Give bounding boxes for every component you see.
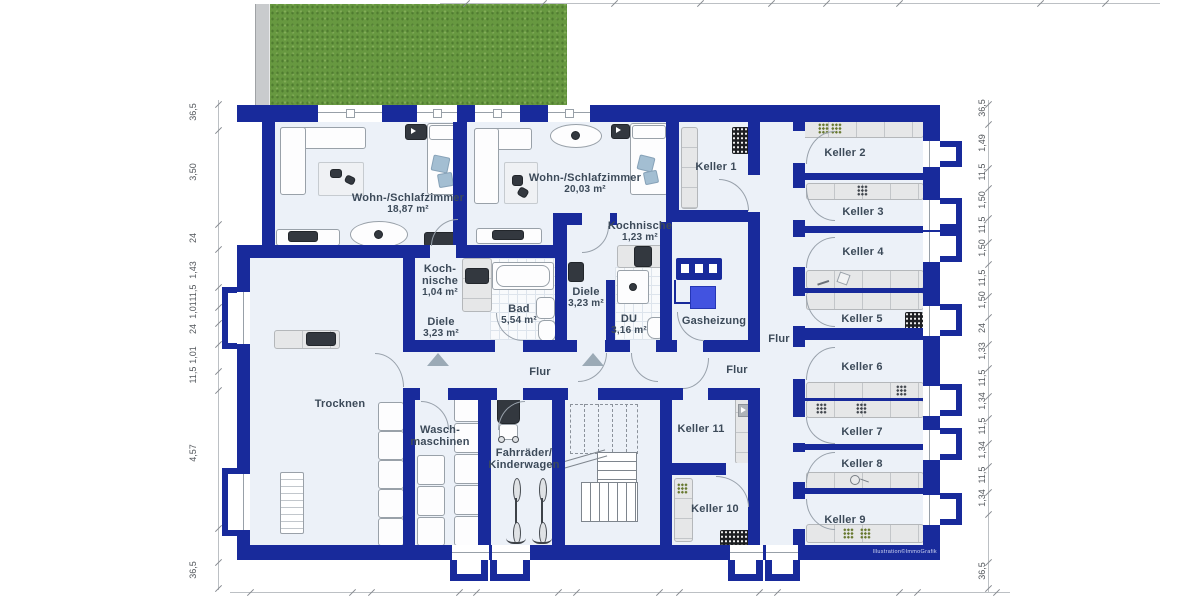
bed-pillow (632, 125, 666, 139)
sideboard-tv (288, 231, 318, 242)
sideboard-tv (492, 230, 524, 240)
door-gap (677, 340, 703, 352)
shower-drain (629, 283, 637, 291)
door-gap (726, 463, 748, 475)
window-vent (493, 109, 502, 118)
room-label-wohn1: Wohn-/Schlafzimmer 18,87 m² (352, 192, 464, 216)
dimension-line-right (988, 100, 989, 592)
wall-keller1-south (666, 210, 760, 222)
dim-label: 1,34 (977, 481, 987, 515)
door-gap (793, 188, 805, 220)
light-well (940, 428, 962, 460)
stairs-dash-line (626, 404, 627, 452)
window (923, 495, 940, 525)
room-label-bad: Bad 5,54 m² (501, 303, 537, 327)
room-label-diele1: Diele 3,23 m² (423, 316, 459, 340)
shelf-icon (843, 528, 854, 539)
drying-rack (280, 472, 304, 534)
light-well (765, 560, 800, 581)
door-gap (495, 340, 523, 352)
room-name: Keller 3 (842, 206, 883, 218)
tv-panel (405, 124, 427, 140)
room-label-kochnische1: Koch- nische 1,04 m² (422, 263, 458, 299)
table-center (374, 230, 383, 239)
bike-handlebar (506, 532, 526, 544)
window (923, 232, 940, 262)
dim-label: 11,5 (188, 358, 198, 392)
room-label-waschmaschinen: Wasch- maschinen (410, 424, 469, 448)
door-gap (568, 388, 598, 400)
bed-cushion (431, 154, 451, 173)
bed-cushion (437, 172, 454, 188)
table-center (571, 131, 580, 140)
room-name: Keller 2 (824, 147, 865, 159)
wall-k3-k4 (805, 226, 923, 233)
room-label-flur-corridor: Flur (768, 333, 790, 345)
lawn-retaining-wall (255, 4, 270, 105)
room-area: 3,23 m² (423, 328, 459, 340)
stroller-wheel (512, 436, 519, 443)
room-name: Bad (501, 303, 537, 315)
room-name: Keller 9 (824, 514, 865, 526)
door-gap (748, 175, 760, 212)
stairs-dash-line (598, 404, 599, 452)
room-label-diele2: Diele 3,23 m² (568, 286, 604, 310)
room-name: Keller 4 (842, 246, 883, 258)
window-vent (433, 109, 442, 118)
bench-items (306, 332, 336, 346)
light-well (222, 468, 237, 536)
sink (536, 297, 555, 319)
room-name: Keller 10 (691, 503, 739, 515)
light-well (728, 560, 763, 581)
washer (454, 485, 481, 515)
room-label-flur-mid: Flur (726, 364, 748, 376)
tv-icon (411, 128, 416, 134)
window (452, 545, 489, 560)
bike-handlebar (532, 532, 552, 544)
gas-manifold-cell (695, 264, 703, 273)
rug-table (512, 175, 523, 186)
shelf-icon (677, 483, 688, 494)
room-name: Flur (768, 333, 790, 345)
room-label-keller3: Keller 3 (842, 206, 883, 218)
door-gap (793, 452, 805, 482)
room-name: Fahrräder/ (488, 447, 559, 459)
watermark: Illustration©ImmoGrafik (857, 549, 937, 555)
shelf-icon (816, 403, 827, 414)
sofa (280, 127, 306, 195)
wall-k5-k6 (805, 328, 923, 340)
washer (417, 517, 445, 546)
wall-k2-k3 (805, 173, 923, 180)
room-label-keller11: Keller 11 (677, 423, 724, 435)
door-gap (793, 237, 805, 267)
door-gap (420, 388, 448, 400)
window (492, 545, 530, 560)
room-area: 20,03 m² (529, 184, 641, 196)
keller1-rack (732, 127, 749, 154)
window (237, 474, 250, 530)
door-gap (793, 417, 805, 443)
window (923, 141, 940, 167)
washing-machine (568, 262, 584, 282)
dim-label: 4,57 (188, 436, 198, 470)
room-label-trocknen: Trocknen (315, 398, 366, 410)
stairs-dash-line (612, 404, 613, 452)
room-area: 3,23 m² (568, 298, 604, 310)
light-well (450, 560, 488, 581)
dim-label: 36,5 (977, 554, 987, 588)
dryer (378, 460, 404, 489)
washer (454, 516, 481, 546)
window (730, 545, 763, 560)
sofa (474, 128, 499, 204)
magnifier-icon (850, 475, 860, 485)
shelf-icon (856, 403, 867, 414)
room-area: 1,04 m² (422, 287, 458, 299)
kitchenette-stove (634, 246, 652, 267)
wall-flur-north (403, 340, 660, 352)
room-name: DU (611, 313, 647, 325)
window (923, 386, 940, 416)
window (766, 545, 798, 560)
room-label-fahrraeder: Fahrräder/ Kinderwagen (488, 447, 559, 471)
shelf-icon (860, 528, 871, 539)
window (923, 306, 940, 336)
dim-label: 36,5 (188, 553, 198, 587)
room-area: 18,87 m² (352, 204, 464, 216)
lawn (270, 4, 567, 105)
room-area: 1,23 m² (608, 232, 672, 244)
room-label-keller4: Keller 4 (842, 246, 883, 258)
room-name: Wasch- (410, 424, 469, 436)
window (923, 200, 940, 230)
light-well (940, 198, 962, 230)
room-name: Kochnische (608, 220, 672, 232)
room-name: Flur (726, 364, 748, 376)
door-gap (793, 296, 805, 326)
door-gap (793, 131, 805, 163)
light-well (940, 141, 962, 167)
room-name: Keller 7 (841, 426, 882, 438)
washer (417, 455, 445, 485)
room-name: Diele (423, 316, 459, 328)
room-label-keller6: Keller 6 (841, 361, 882, 373)
door-gap (748, 352, 760, 388)
gas-manifold-cell (709, 264, 717, 273)
room-label-kochnische2: Kochnische 1,23 m² (608, 220, 672, 244)
room-label-keller10: Keller 10 (691, 503, 739, 515)
gas-heater (690, 286, 716, 309)
room-name: Keller 1 (695, 161, 736, 173)
room-name: Flur (529, 366, 551, 378)
gas-pipe (674, 280, 690, 304)
dim-label: 3,50 (188, 155, 198, 189)
room-name: Keller 11 (677, 423, 724, 435)
door-gap (497, 388, 523, 400)
toilet (538, 320, 556, 342)
wall-bad-east (555, 258, 567, 352)
room-name: Keller 8 (841, 458, 882, 470)
bathtub-inner (496, 265, 550, 287)
rug (318, 162, 364, 196)
rug-table (330, 169, 342, 178)
room-name: Gasheizung (682, 315, 746, 327)
stairs-flight (581, 482, 638, 522)
wall-apt2-keller1 (666, 122, 679, 213)
room-label-keller9: Keller 9 (824, 514, 865, 526)
keller10-rack (720, 530, 750, 546)
outer-wall-left-upper (262, 105, 275, 258)
window-vent (346, 109, 355, 118)
exterior-notch (237, 105, 262, 245)
room-label-keller1: Keller 1 (695, 161, 736, 173)
dryer (378, 431, 404, 460)
window-vent (565, 109, 574, 118)
dimension-line-top (440, 3, 1160, 4)
washer (454, 454, 481, 484)
room-label-keller8: Keller 8 (841, 458, 882, 470)
room-name: maschinen (410, 436, 469, 448)
dryer (378, 489, 404, 518)
kitchenette-appliance (465, 268, 489, 284)
door-gap (582, 213, 610, 225)
door-gap (683, 388, 708, 400)
gas-manifold-cell (681, 264, 689, 273)
wall-trocknen-east (403, 258, 415, 548)
wall-k7-k8 (805, 444, 923, 450)
room-label-gasheizung: Gasheizung (682, 315, 746, 327)
stairs-dash-line (584, 404, 585, 452)
door-gap (793, 347, 805, 379)
floor-plan: Wohn-/Schlafzimmer 18,87 m² Wohn-/Schlaf… (0, 0, 1200, 600)
door-gap (630, 340, 656, 352)
room-name: Keller 5 (841, 313, 882, 325)
light-well (490, 560, 530, 581)
stroller-wheel (498, 436, 505, 443)
dryer (378, 402, 404, 431)
room-name: Kinderwagen (488, 459, 559, 471)
room-name: Wohn-/Schlafzimmer (529, 172, 641, 184)
room-label-keller5: Keller 5 (841, 313, 882, 325)
room-name: Koch- (422, 263, 458, 275)
window (237, 292, 250, 344)
entrance-arrow (582, 353, 604, 366)
dim-label: 1,50 (977, 231, 987, 265)
dim-label: 24 (188, 221, 198, 255)
wall-apt2-south-left (467, 245, 567, 258)
outer-wall-bottom (237, 545, 940, 560)
stairs-upper-flight (570, 404, 638, 454)
room-label-wohn2: Wohn-/Schlafzimmer 20,03 m² (529, 172, 641, 196)
room-name: Trocknen (315, 398, 366, 410)
light-well (940, 384, 962, 416)
dryer (378, 518, 404, 546)
room-label-keller2: Keller 2 (824, 147, 865, 159)
wall-k8-k9 (805, 488, 923, 494)
light-well (222, 287, 237, 349)
room-label-du: DU 3,16 m² (611, 313, 647, 337)
window (923, 430, 940, 460)
washer (417, 486, 445, 516)
kitchenette-apt1 (462, 258, 492, 312)
tv-icon (616, 127, 621, 133)
room-area: 5,54 m² (501, 315, 537, 327)
room-name: Diele (568, 286, 604, 298)
shelf-icon (857, 185, 868, 196)
light-well (940, 230, 962, 262)
room-label-flur-main: Flur (529, 366, 551, 378)
room-name: nische (422, 275, 458, 287)
dimension-line-bottom (230, 592, 1010, 593)
light-well (940, 493, 962, 525)
dim-label: 36,5 (188, 95, 198, 129)
arrow-icon-glyph (741, 407, 746, 413)
door-gap (430, 245, 456, 258)
entrance-arrow (427, 353, 449, 366)
shelf-icon (896, 385, 907, 396)
wall-k6-k7 (805, 398, 923, 401)
room-label-keller7: Keller 7 (841, 426, 882, 438)
room-area: 3,16 m² (611, 325, 647, 337)
light-well (940, 304, 962, 336)
room-name: Wohn-/Schlafzimmer (352, 192, 464, 204)
room-name: Keller 6 (841, 361, 882, 373)
door-gap (403, 352, 415, 388)
door-gap (793, 499, 805, 529)
dimension-tick (215, 585, 222, 592)
door-gap (577, 340, 605, 352)
wall-k4-k5 (805, 288, 923, 293)
